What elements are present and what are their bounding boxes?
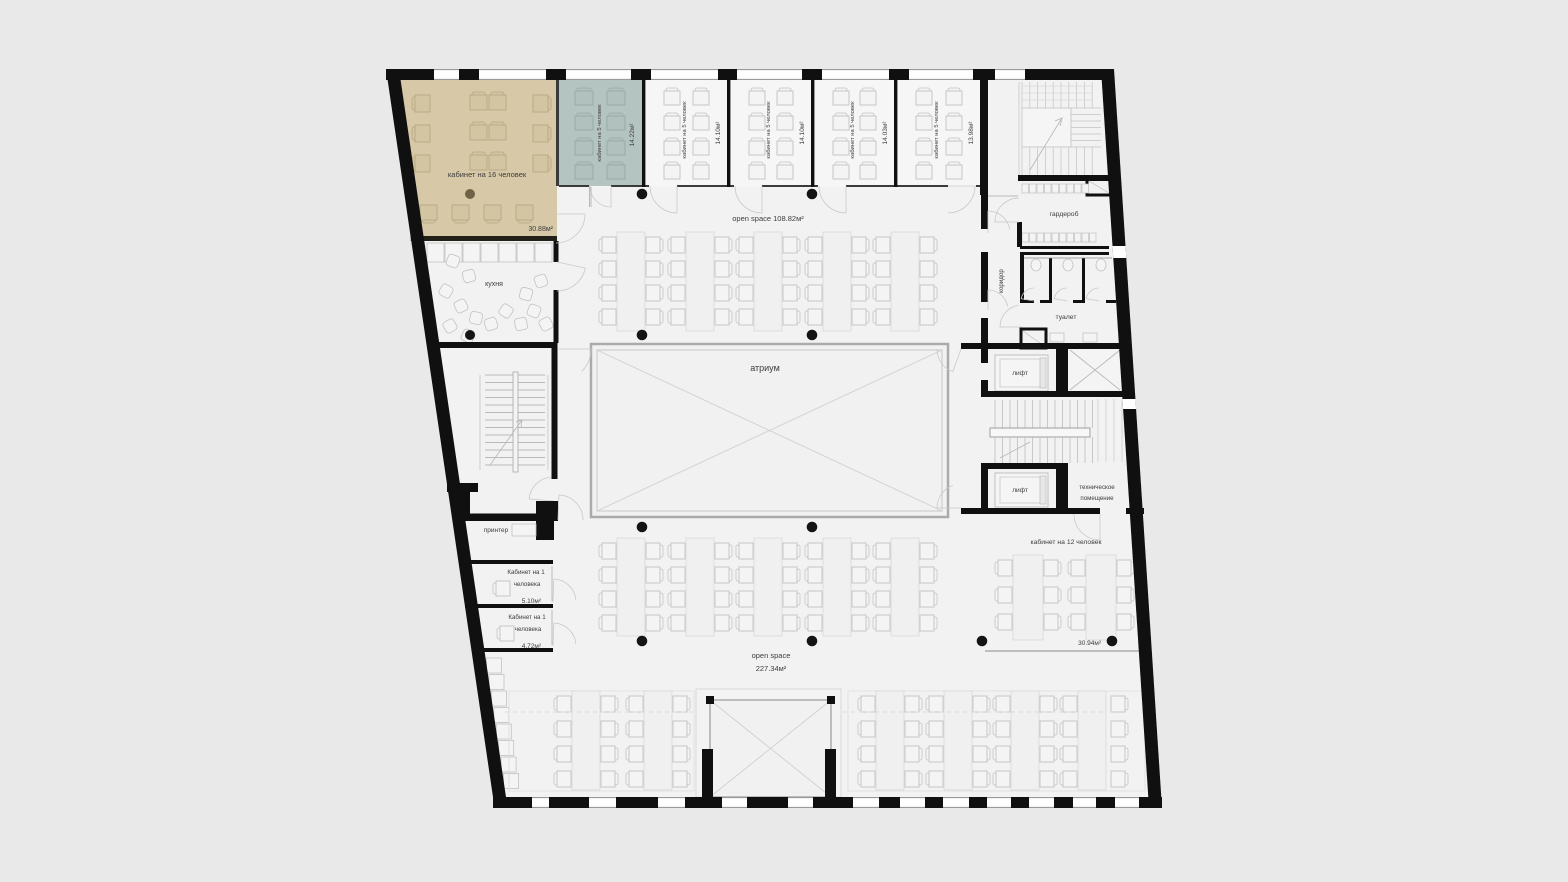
svg-text:14.10м²: 14.10м² [799, 121, 806, 145]
svg-text:принтер: принтер [484, 527, 509, 534]
svg-text:лифт: лифт [1012, 370, 1028, 377]
svg-text:Кабинет на 1: Кабинет на 1 [507, 569, 545, 576]
svg-text:гардероб: гардероб [1050, 210, 1079, 218]
svg-text:кабинет на 16 человек: кабинет на 16 человек [448, 170, 527, 179]
svg-text:кухня: кухня [485, 281, 503, 288]
svg-text:Кабинет на 1: Кабинет на 1 [508, 614, 546, 621]
svg-text:14.22м²: 14.22м² [629, 123, 636, 147]
svg-text:техническое: техническое [1079, 484, 1115, 491]
svg-text:лифт: лифт [1012, 487, 1028, 494]
svg-text:человека: человека [515, 626, 542, 633]
svg-text:14.10м²: 14.10м² [715, 121, 722, 145]
svg-text:туалет: туалет [1056, 314, 1077, 321]
svg-text:open space 108.82м²: open space 108.82м² [732, 214, 804, 223]
svg-text:open space: open space [752, 651, 791, 660]
svg-text:кабинет на 5 человек: кабинет на 5 человек [934, 101, 940, 159]
svg-text:помещение: помещение [1080, 495, 1114, 502]
svg-text:кабинет на 5 человек: кабинет на 5 человек [682, 101, 688, 159]
svg-text:5.10м²: 5.10м² [522, 598, 542, 605]
svg-text:кабинет на 5 человек: кабинет на 5 человек [597, 104, 603, 162]
svg-text:кабинет на 5 человек: кабинет на 5 человек [850, 101, 856, 159]
svg-text:227.34м²: 227.34м² [756, 664, 787, 673]
svg-text:коридор: коридор [998, 269, 1005, 293]
svg-text:человека: человека [514, 581, 541, 588]
svg-text:30.94м²: 30.94м² [1078, 640, 1102, 647]
svg-text:13.98м²: 13.98м² [968, 121, 975, 145]
svg-text:атриум: атриум [750, 363, 780, 373]
svg-text:кабинет на 12 человек: кабинет на 12 человек [1031, 538, 1102, 546]
svg-text:14.03м²: 14.03м² [882, 121, 889, 145]
svg-text:30.88м²: 30.88м² [528, 226, 553, 233]
svg-text:кабинет на 5 человек: кабинет на 5 человек [766, 101, 772, 159]
